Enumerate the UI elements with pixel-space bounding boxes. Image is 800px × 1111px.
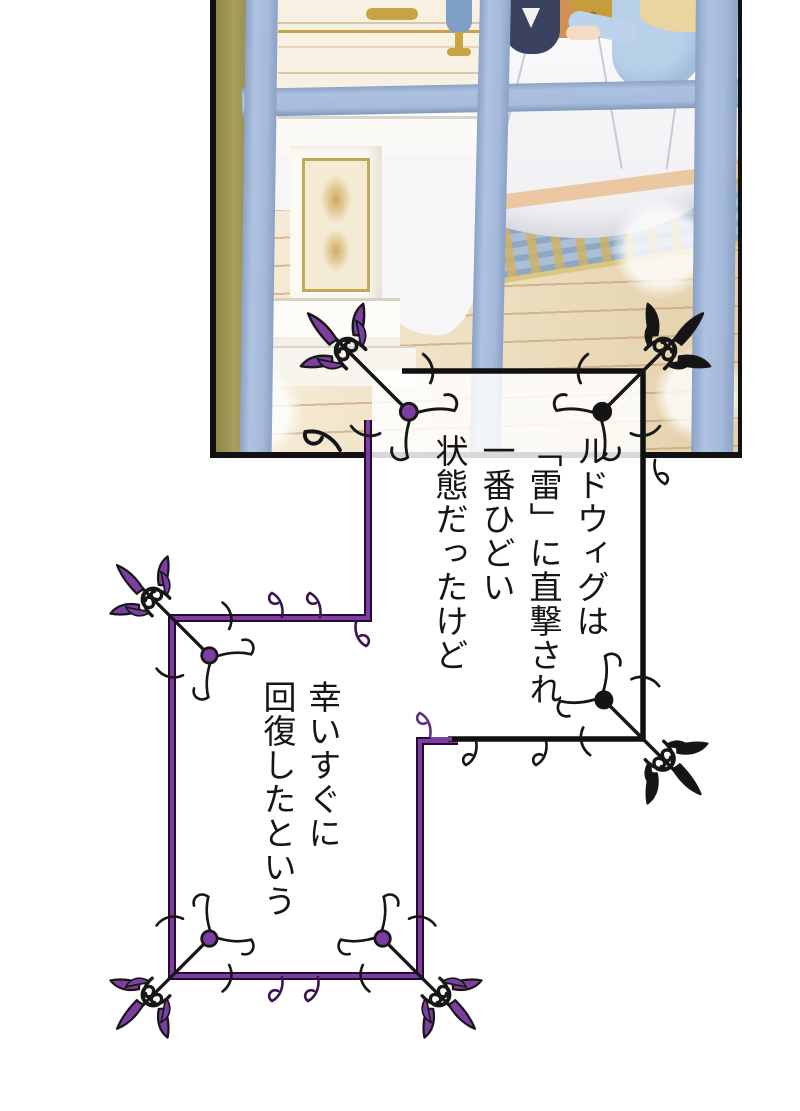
- border-curl-icon: [355, 622, 368, 646]
- border-curl-icon: [269, 593, 282, 617]
- corner-flourish-icon: [339, 895, 482, 1038]
- border-curl-icon: [307, 593, 320, 617]
- border-curl-icon: [269, 977, 282, 1001]
- border-curl-icon: [654, 460, 667, 484]
- border-curl-icon: [305, 977, 318, 1001]
- border-curl-icon: [463, 741, 476, 765]
- caption-text-second: 幸いすぐに 回復したという: [251, 680, 345, 928]
- caption-text-first: ルドウィグは 「雷」に直撃され 一番ひどい 状態だったけど: [422, 434, 614, 719]
- manga-page: ルドウィグは 「雷」に直撃され 一番ひどい 状態だったけど 幸いすぐに 回復した…: [0, 0, 800, 1111]
- corner-flourish-icon: [110, 556, 253, 699]
- flourish-accent-curl-icon: [302, 422, 340, 462]
- border-curl-icon: [533, 741, 546, 765]
- corner-flourish-icon: [110, 895, 253, 1038]
- ornamental-frames: [0, 0, 800, 1111]
